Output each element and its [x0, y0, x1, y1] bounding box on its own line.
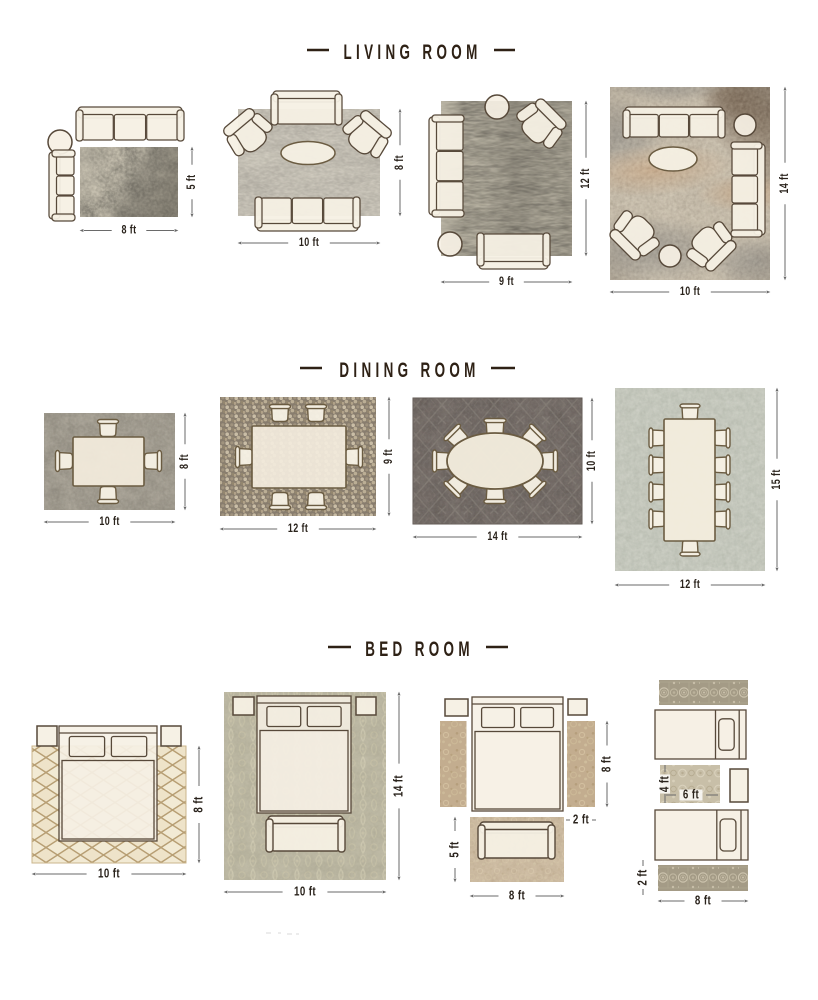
svg-text:14 ft: 14 ft	[392, 775, 405, 797]
svg-text:8 ft: 8 ft	[509, 889, 525, 902]
svg-text:12 ft: 12 ft	[288, 523, 308, 535]
svg-text:12 ft: 12 ft	[580, 168, 592, 188]
svg-text:DINING ROOM: DINING ROOM	[339, 358, 479, 382]
svg-text:8 ft: 8 ft	[394, 155, 406, 170]
svg-text:10 ft: 10 ft	[294, 885, 316, 898]
svg-text:BED ROOM: BED ROOM	[365, 637, 474, 661]
svg-text:5 ft: 5 ft	[186, 174, 198, 189]
svg-text:10 ft: 10 ft	[99, 516, 119, 528]
svg-text:8 ft: 8 ft	[192, 796, 205, 812]
svg-text:10 ft: 10 ft	[680, 286, 700, 298]
svg-text:14 ft: 14 ft	[487, 531, 507, 543]
svg-text:15 ft: 15 ft	[771, 469, 783, 489]
svg-text:6 ft: 6 ft	[683, 788, 699, 801]
svg-text:10 ft: 10 ft	[98, 867, 120, 880]
svg-text:8 ft: 8 ft	[179, 454, 191, 469]
svg-text:14 ft: 14 ft	[779, 173, 791, 193]
svg-text:10 ft: 10 ft	[586, 451, 598, 471]
svg-text:9 ft: 9 ft	[383, 449, 395, 464]
svg-text:8 ft: 8 ft	[121, 224, 136, 236]
svg-text:5 ft: 5 ft	[448, 841, 461, 857]
svg-text:8 ft: 8 ft	[695, 894, 711, 907]
svg-text:8 ft: 8 ft	[600, 756, 613, 772]
svg-text:2 ft: 2 ft	[636, 869, 649, 885]
svg-text:4 ft: 4 ft	[658, 776, 671, 792]
svg-text:12 ft: 12 ft	[680, 579, 700, 591]
svg-text:10 ft: 10 ft	[299, 237, 319, 249]
svg-text:LIVING ROOM: LIVING ROOM	[343, 40, 481, 64]
svg-text:9 ft: 9 ft	[499, 276, 514, 288]
svg-text:2 ft: 2 ft	[573, 813, 589, 826]
